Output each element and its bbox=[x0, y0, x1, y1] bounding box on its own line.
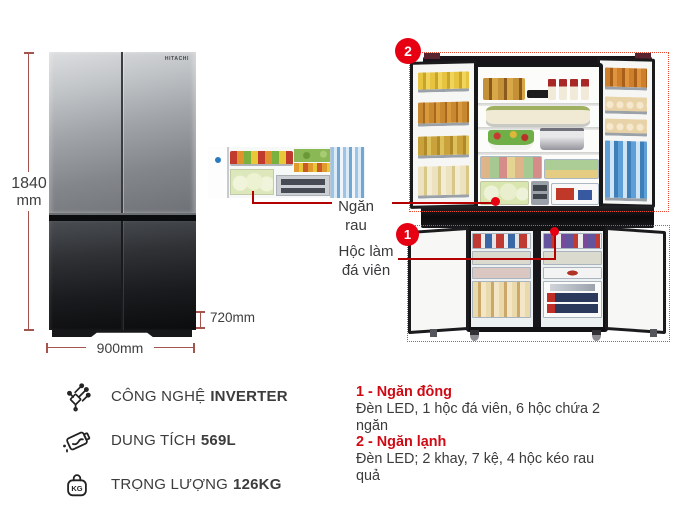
fridge-base bbox=[52, 330, 192, 337]
inverter-circuit-icon bbox=[60, 380, 94, 414]
fridge-middle-divider bbox=[49, 213, 196, 221]
water-capacity-icon bbox=[60, 424, 94, 458]
product-spec-infographic: HITACHI 1840 mm 900mm 720mm bbox=[0, 0, 696, 522]
ice-callout-line bbox=[554, 232, 556, 259]
feature-inverter: CÔNG NGHỆINVERTER bbox=[60, 380, 288, 413]
width-dim-cap-right bbox=[193, 343, 195, 353]
height-dim-cap-bottom bbox=[24, 329, 34, 331]
inset-logo-dot bbox=[215, 157, 221, 163]
feature-text: CÔNG NGHỆINVERTER bbox=[111, 388, 288, 405]
vegetable-drawer-label: Ngăn rau bbox=[328, 197, 384, 235]
hitachi-logo: HITACHI bbox=[165, 56, 189, 62]
height-dim-line bbox=[28, 211, 29, 329]
ice-callout-dot bbox=[550, 227, 559, 236]
fridge-zone-badge: 2 bbox=[395, 38, 421, 64]
inset-ice-module bbox=[276, 175, 330, 196]
width-dim-cap-left bbox=[46, 343, 48, 353]
feature-list: CÔNG NGHỆINVERTER DUNG TÍCH569L bbox=[60, 380, 288, 501]
width-dim-line bbox=[48, 347, 86, 348]
legend-desc-fridge: Đèn LED; 2 khay, 7 kệ, 4 hộc kéo rau quả bbox=[356, 451, 618, 485]
feature-capacity: DUNG TÍCH569L bbox=[60, 424, 288, 457]
fridge-upper-doors: HITACHI bbox=[49, 52, 196, 213]
depth-dim-label: 720mm bbox=[210, 310, 255, 325]
feature-text: DUNG TÍCH569L bbox=[111, 432, 236, 449]
fridge-lower-doors bbox=[49, 221, 196, 330]
ice-callout-line bbox=[398, 258, 556, 260]
freezer-zone-outline bbox=[407, 225, 670, 342]
depth-dim-line bbox=[200, 313, 201, 327]
freezer-zone-badge: 1 bbox=[396, 223, 419, 246]
legend-heading-freezer: 1 - Ngăn đông bbox=[356, 384, 618, 401]
veg-callout-line bbox=[252, 202, 332, 204]
height-dim-label: 1840 mm bbox=[2, 175, 56, 209]
door-gap-line bbox=[121, 221, 123, 330]
width-dim-line bbox=[154, 347, 193, 348]
legend-heading-fridge: 2 - Ngăn lạnh bbox=[356, 434, 618, 451]
door-gap-line bbox=[121, 52, 123, 213]
feature-text: TRỌNG LƯỢNG126KG bbox=[111, 476, 282, 493]
fridge-zone-outline bbox=[409, 52, 669, 212]
height-dim-cap-top bbox=[24, 52, 34, 54]
kg-weight-icon: KG bbox=[60, 468, 94, 502]
depth-dim-cap-bottom bbox=[196, 327, 205, 329]
height-dim-line bbox=[28, 53, 29, 172]
vegetable-drawer-inset-photo bbox=[208, 147, 365, 198]
inset-fruit-row bbox=[230, 151, 293, 166]
svg-text:KG: KG bbox=[71, 484, 82, 493]
zone-legend: 1 - Ngăn đông Đèn LED, 1 hộc đá viên, 6 … bbox=[356, 384, 618, 485]
closed-fridge-photo: HITACHI bbox=[49, 52, 196, 337]
veg-callout-line bbox=[392, 202, 493, 204]
inset-door-panel bbox=[208, 147, 229, 198]
veg-callout-dot bbox=[491, 197, 500, 206]
width-dim-label: 900mm bbox=[84, 340, 156, 356]
ice-box-label: Hộc làm đá viên bbox=[332, 242, 400, 280]
legend-desc-freezer: Đèn LED, 1 hộc đá viên, 6 hộc chứa 2 ngă… bbox=[356, 401, 618, 435]
inset-fruits bbox=[294, 163, 330, 172]
inset-water-bottles bbox=[330, 147, 365, 198]
feature-weight: KG TRỌNG LƯỢNG126KG bbox=[60, 468, 288, 501]
